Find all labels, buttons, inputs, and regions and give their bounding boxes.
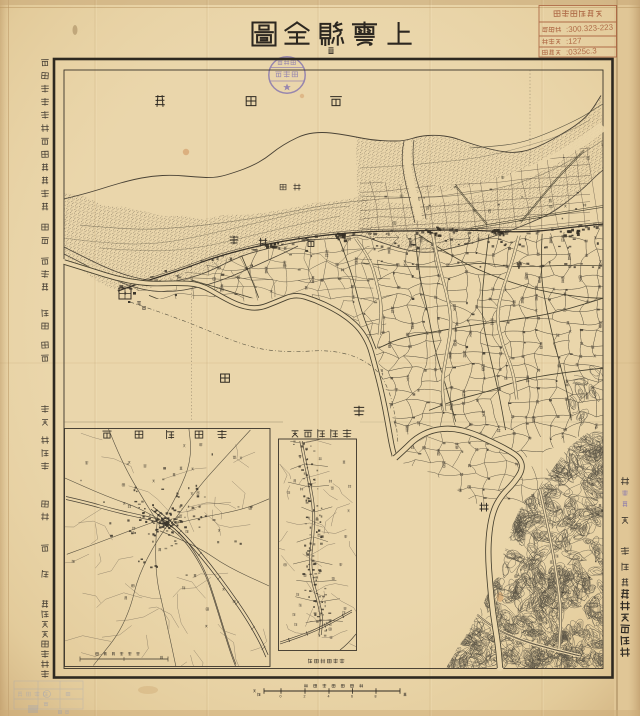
svg-text:4: 4 [328,695,330,699]
svg-text::127: :127 [566,36,583,46]
svg-text:0: 0 [280,695,282,699]
svg-text::0325c.3: :0325c.3 [566,46,598,57]
svg-text:8: 8 [375,695,377,699]
svg-text:6: 6 [351,695,353,699]
svg-text:2: 2 [304,695,306,699]
